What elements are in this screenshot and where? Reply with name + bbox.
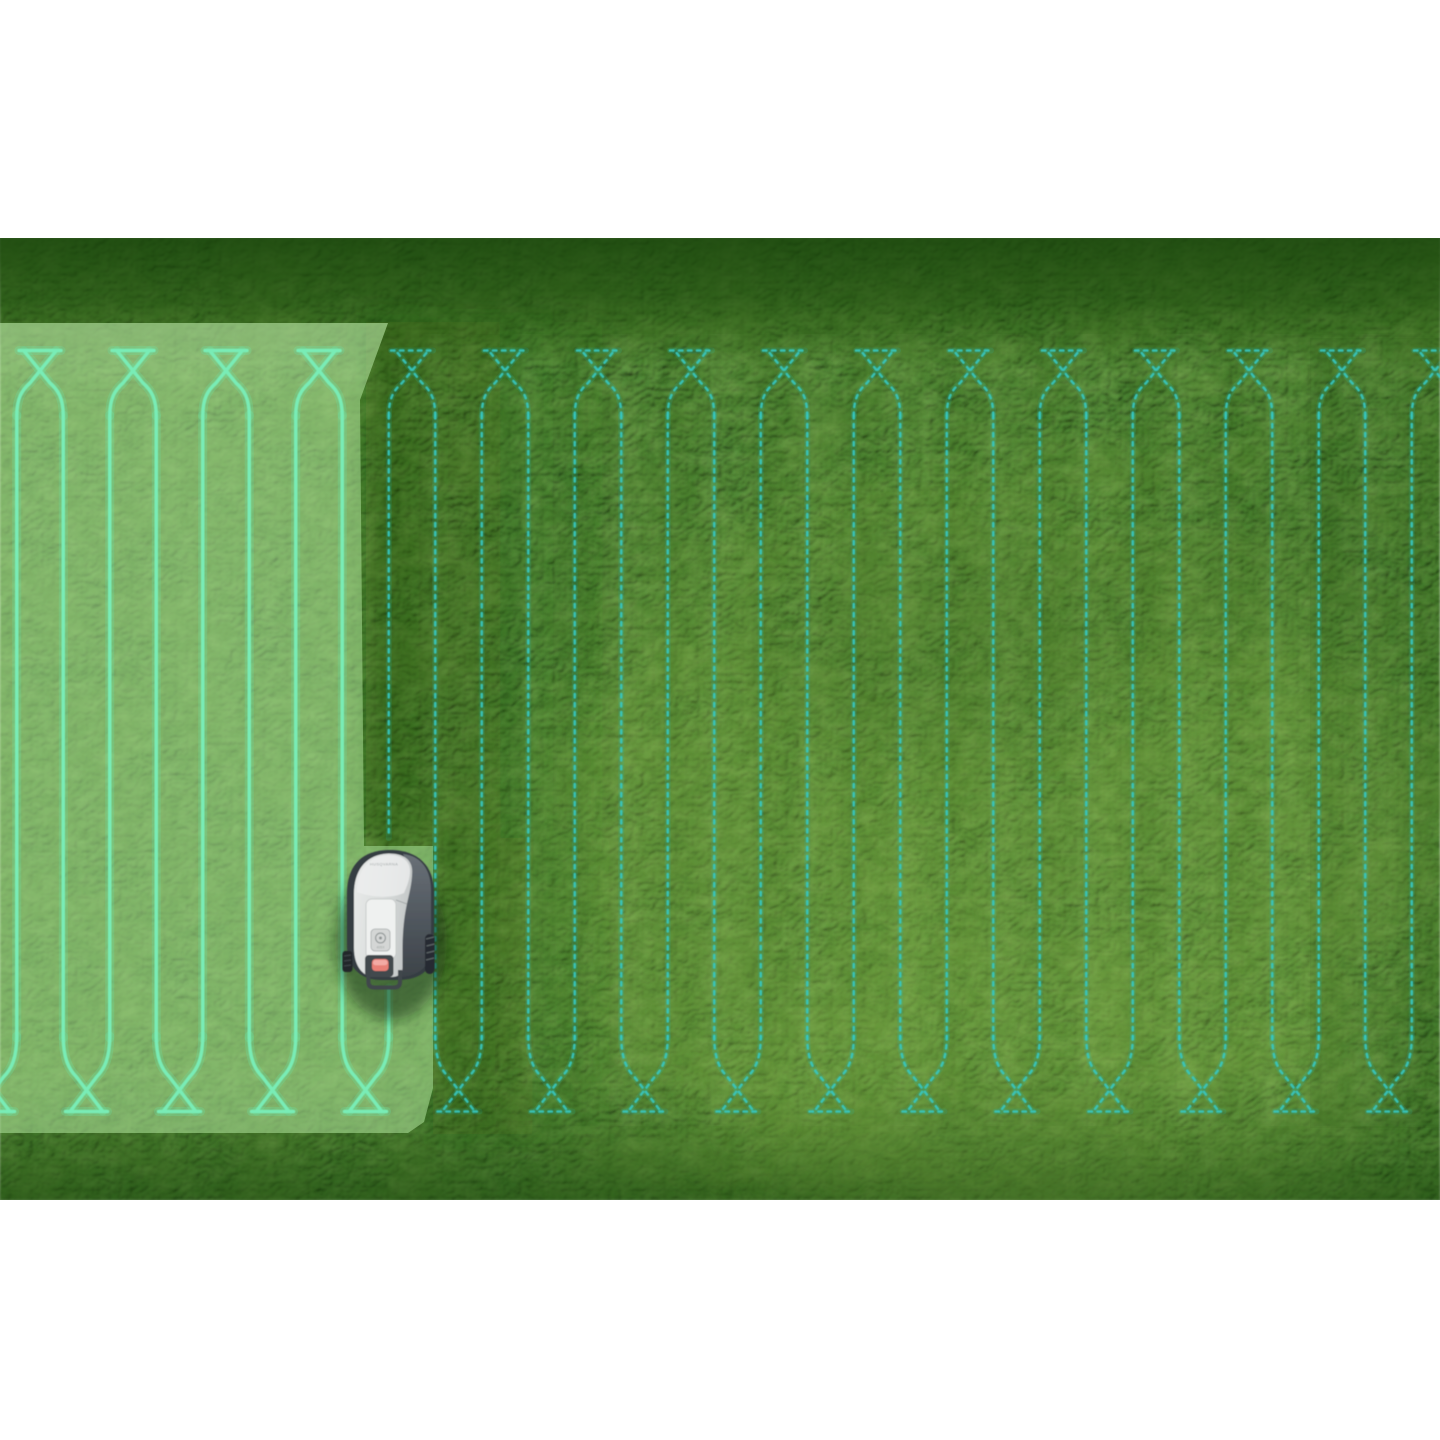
svg-text:HUSQVARNA: HUSQVARNA [370,862,398,867]
svg-text:405X: 405X [377,946,386,950]
